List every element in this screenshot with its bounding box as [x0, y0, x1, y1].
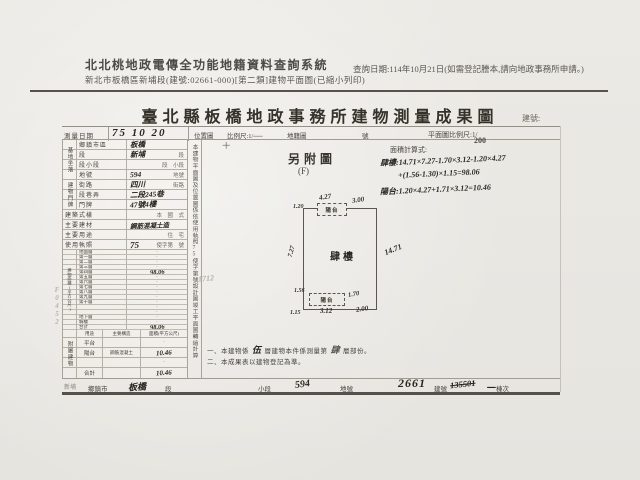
row-label: 段 [77, 150, 127, 159]
floor-label [77, 305, 127, 309]
annex-row: · [63, 358, 187, 368]
divider [188, 127, 189, 141]
sheet-no-label: 號 [362, 130, 369, 140]
row-value: 二段245巷 [130, 190, 164, 200]
site-group-label: 基地坐落 [63, 140, 77, 180]
survey-date-label: 測量日期 [64, 130, 94, 140]
floor-label: 第三層 [77, 265, 127, 269]
floor-label: 第四層 [77, 270, 127, 274]
area-calc-label: 面積計算式: [390, 145, 427, 155]
row-value: 47號4樓 [130, 200, 157, 210]
floor-area-group-label: 建物面積(平方公尺) [63, 250, 77, 330]
footnote-1-floors-value: 伍 [252, 345, 262, 355]
row-label: 地號 [77, 170, 127, 179]
floor-label: 地面層 [77, 250, 127, 254]
site-row: 段小段 段 小段 [63, 160, 187, 170]
row-suffix: 住 宅 [167, 231, 184, 239]
attached-map-sub: (F) [298, 166, 309, 176]
dim-b-br: 2.00 [356, 304, 369, 314]
side-note-text: 本建物平面圖及位置圖係依使用執照75使字第號設計圖竣工平面圖轉繪計算 [190, 140, 199, 359]
floor-label: 第五層 [77, 275, 127, 279]
survey-cross-mark: + [222, 138, 230, 155]
divider [108, 127, 109, 141]
floor-label: 合計 [77, 325, 127, 329]
row-value: 四川 [130, 180, 145, 190]
footer-old-number-struck: 135501 [450, 378, 476, 391]
site-row: 地號 594地號 [63, 170, 187, 180]
site-row: 鄉鎮市區 板橋 [63, 140, 187, 150]
site-row: 段 新埔段 [63, 150, 187, 160]
floor-label [77, 310, 127, 314]
land-record-printout-page: { "system": { "title": "北北桃地政電傳全功能地籍資料查詢… [0, 0, 640, 480]
form-right-border [560, 126, 561, 392]
side-note-strip: 本建物平面圖及位置圖係依使用執照75使字第號設計圖竣工平面圖轉繪計算 [188, 140, 202, 378]
annex-area: · [163, 360, 165, 365]
survey-date-value: 75 10 20 [112, 127, 167, 139]
query-date: 查詢日期:114年10月21日(如需登記謄本,請向地政事務所申請。) [353, 63, 584, 75]
balcony-top-label: 陽台 [325, 206, 338, 214]
building-attributes-table: 基地坐落 建物門牌 建物面積(平方公尺) 附屬建物 鄉鎮市區 板橋 段 新埔段 … [62, 140, 188, 378]
footnote-1-floor-value: 肆 [331, 345, 341, 355]
annex-header-area: 面積(平方公尺) [141, 330, 187, 337]
footnote-1-text: 一、本建物係 [207, 348, 249, 355]
system-title: 北北桃地政電傳全功能地籍資料查詢系統 [85, 56, 328, 73]
annex-header-use: 用途 [77, 330, 103, 337]
row-suffix: 段 [178, 151, 184, 159]
balcony-bottom-label: 陽台 [320, 296, 333, 304]
floor-label: 第六層 [77, 280, 127, 284]
location-scale-label: 比例尺:1/── [227, 130, 263, 140]
floor-value: · [156, 310, 158, 315]
row-label: 段小段 [77, 160, 127, 169]
address-row: 街路 四川街路 [63, 180, 187, 190]
row-label: 使用執照 [63, 240, 127, 249]
system-subtitle: 新北市板橋區新埔段(建號:02661-000)[第二類]建物平面圖(已縮小列印) [85, 74, 365, 86]
floor-value: · [156, 255, 158, 260]
floor-value: · [156, 320, 158, 325]
annex-use: 陽台 [77, 348, 103, 357]
address-row: 段巷弄 二段245巷 [63, 190, 187, 200]
row-label: 街路 [77, 180, 127, 189]
floor-label: 第八層 [77, 290, 127, 294]
info-row: 建築式樣 本 國 式 [63, 210, 187, 220]
info-row: 主要用途 住 宅 [63, 230, 187, 240]
row-suffix: 使字第 號 [156, 241, 184, 249]
annex-row: 陽台 鋼筋混凝土 10.46 [63, 348, 187, 358]
document-title: 臺北縣板橋地政事務所建物測量成果圖 [135, 103, 505, 127]
address-group-label: 建物門牌 [63, 180, 77, 210]
footer-building-no-value: 2661 [398, 376, 426, 391]
footer-corner-mark: 新埔 [64, 382, 76, 391]
annex-structure [103, 368, 141, 378]
address-row: 門牌 47號4樓 [63, 200, 187, 210]
info-row: 使用執照 75使字第 號 [63, 240, 187, 250]
location-map-label: 位置圖 [194, 130, 214, 140]
annex-header-row: 用途 主要構造 面積(平方公尺) [63, 330, 187, 338]
dim-b-left: 1.56 [294, 288, 305, 294]
row-label: 建築式樣 [63, 210, 127, 219]
dim-b-bl: 1.15 [290, 310, 301, 316]
row-value: 板橋 [130, 140, 145, 150]
floor-label: 騎樓 [77, 320, 127, 324]
row-value: 鋼筋混凝土造 [130, 220, 169, 230]
floor-label: 第七層 [77, 285, 127, 289]
row-suffix: 街路 [173, 181, 184, 189]
annex-group-label: 附屬建物 [63, 330, 77, 378]
annex-use [77, 358, 103, 367]
floor-value: · [156, 265, 158, 270]
info-row: 主要建材 鋼筋混凝土造 [63, 220, 187, 230]
row-suffix: 地號 [173, 171, 184, 179]
row-value: 75 [130, 240, 139, 250]
annex-area: 10.46 [156, 368, 172, 377]
annex-use: 平台 [77, 338, 103, 347]
stray-handwriting: 1712 [198, 273, 215, 283]
row-suffix: 本 國 式 [156, 211, 184, 219]
floor-value: · [156, 300, 158, 305]
balcony-bottom-outline: 陽台 [309, 293, 345, 306]
plan-scale-label: 平面圖比例尺:1/ [428, 130, 477, 140]
floor-label: 第九層 [77, 295, 127, 299]
row-value: 新埔 [130, 150, 145, 160]
floor-value: · [156, 260, 158, 265]
floor-value: · [156, 295, 158, 300]
annex-header-structure: 主要構造 [103, 330, 141, 337]
balcony-top-outline: 陽台 [317, 203, 347, 216]
floor-value: · [156, 305, 158, 310]
footnote-1-text: 層建物本件係測量第 [265, 348, 328, 355]
margin-scribble: F0452 [53, 286, 61, 346]
dim-left-top: 1.20 [293, 204, 304, 210]
floor-value: · [156, 280, 158, 285]
floor-value: · [156, 250, 158, 255]
cadastral-map-label: 地籍圖 [287, 130, 307, 140]
dim-b-bottom: 3.12 [320, 307, 332, 315]
row-label: 段巷弄 [77, 190, 127, 199]
annex-structure [103, 338, 141, 347]
attached-map-note: 另附圖 [288, 150, 336, 167]
floor-value: · [156, 290, 158, 295]
annex-area: · [163, 340, 165, 345]
annex-use: 合計 [77, 368, 103, 378]
dim-top: 4.27 [319, 192, 332, 202]
row-label: 主要用途 [63, 230, 127, 239]
annex-total-row: 合計 10.46 [63, 368, 187, 378]
row-suffix: 段 小段 [162, 161, 184, 169]
plan-scale-value: 200 [474, 136, 486, 145]
footer-parcel-value: 594 [294, 378, 310, 391]
floor-value: · [156, 315, 158, 320]
floor-value: · [156, 285, 158, 290]
floor-value: · [156, 275, 158, 280]
footnote-1-text: 層部份。 [343, 348, 371, 355]
floor-label: 地下層 [77, 315, 127, 319]
row-label: 鄉鎮市區 [77, 140, 127, 149]
serial-number-label: 建號: [522, 113, 540, 124]
annex-structure: 鋼筋混凝土 [103, 348, 141, 357]
footnote-1: 一、本建物係伍層建物本件係測量第肆層部份。 [207, 343, 371, 356]
footnote-2: 二、本成果表以建物登記為準。 [207, 356, 305, 366]
row-value: 594 [130, 170, 142, 179]
annex-row: 平台 · [63, 338, 187, 348]
row-label: 主要建材 [63, 220, 127, 229]
header-divider [30, 90, 608, 92]
row-label: 門牌 [77, 200, 127, 209]
form-bottom-rule [62, 392, 560, 395]
annex-area: 10.46 [156, 348, 172, 357]
floor-label: 第二層 [77, 260, 127, 264]
dim-top-right: 3.00 [352, 195, 365, 205]
floor-label: 第十層 [77, 300, 127, 304]
floor-plan-main-label: 肆樓 [330, 248, 356, 263]
floor-label: 第一層 [77, 255, 127, 259]
annex-structure [103, 358, 141, 367]
form-header-row: 測量日期 75 10 20 位置圖 比例尺:1/── 地籍圖 號 平面圖比例尺:… [62, 126, 560, 140]
footer-strip: 新埔 鄉鎮市 板橋 段 小段 594 地號 2661 建號 135501 一 棟… [62, 378, 560, 392]
